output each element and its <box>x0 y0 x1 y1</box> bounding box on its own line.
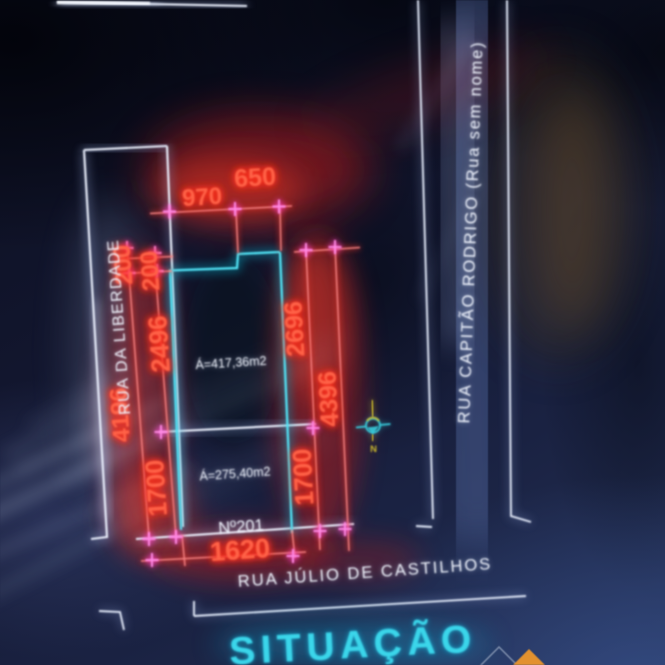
svg-text:200: 200 <box>136 250 166 292</box>
svg-text:1620: 1620 <box>209 533 271 567</box>
svg-text:Á=275,40m2: Á=275,40m2 <box>199 464 271 484</box>
svg-text:N: N <box>370 444 377 455</box>
svg-text:650: 650 <box>233 163 276 193</box>
svg-text:2696: 2696 <box>280 300 311 357</box>
svg-text:2496: 2496 <box>144 315 176 374</box>
svg-text:1700: 1700 <box>289 448 320 506</box>
svg-text:Nº201: Nº201 <box>218 516 265 537</box>
svg-text:1700: 1700 <box>141 459 173 518</box>
svg-text:4396: 4396 <box>314 370 345 427</box>
svg-text:970: 970 <box>181 183 223 212</box>
svg-text:SITUAÇÃO: SITUAÇÃO <box>228 617 478 665</box>
